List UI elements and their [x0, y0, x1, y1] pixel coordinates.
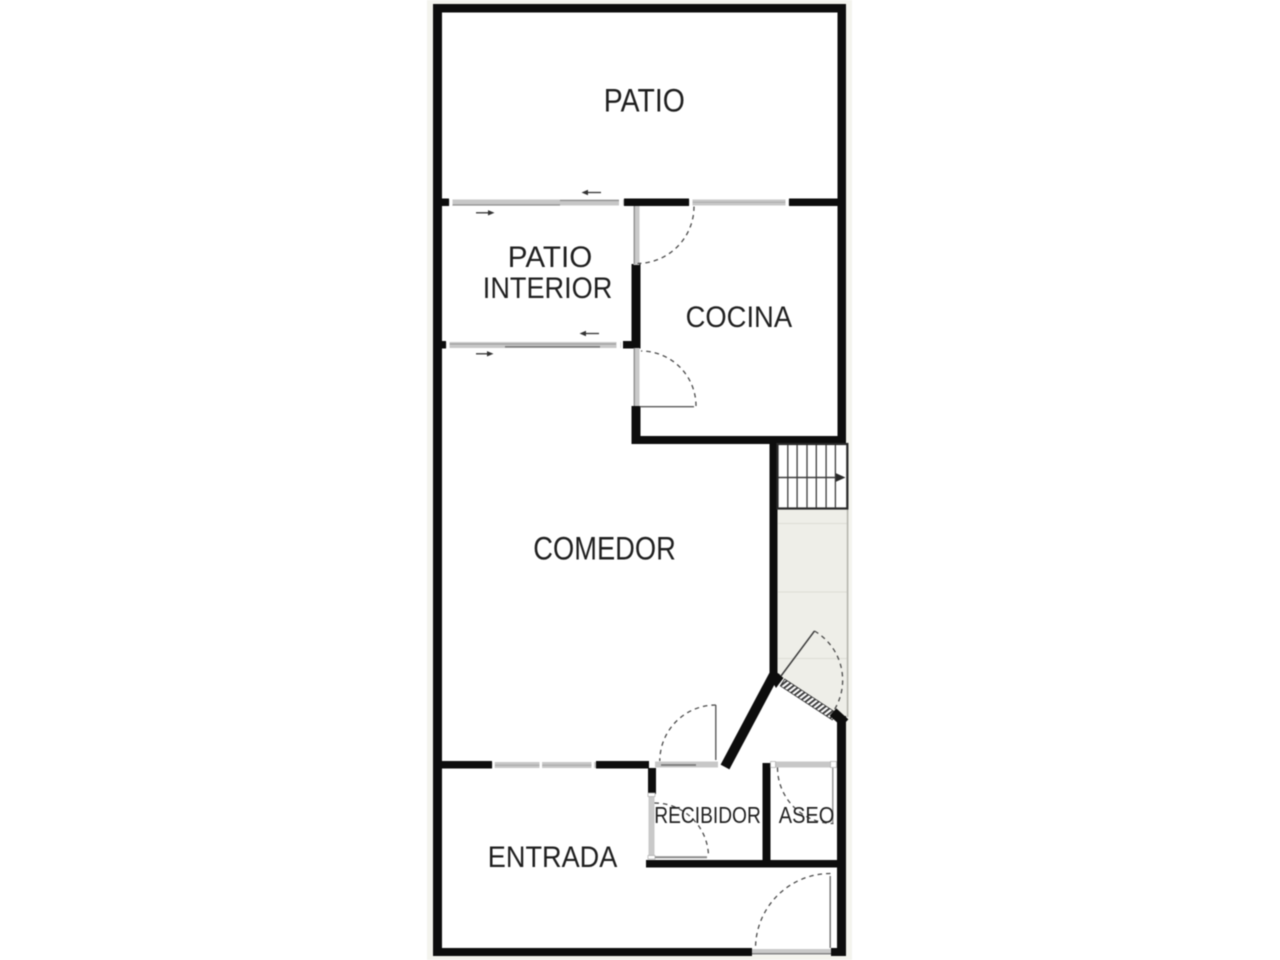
svg-text:RECIBIDOR: RECIBIDOR: [654, 802, 761, 828]
svg-text:INTERIOR: INTERIOR: [483, 272, 613, 305]
svg-text:COMEDOR: COMEDOR: [533, 530, 676, 566]
svg-text:ENTRADA: ENTRADA: [488, 841, 618, 874]
svg-text:COCINA: COCINA: [686, 301, 793, 334]
svg-text:PATIO: PATIO: [604, 82, 685, 118]
svg-text:ASEO: ASEO: [779, 802, 835, 828]
svg-text:PATIO: PATIO: [508, 241, 593, 274]
